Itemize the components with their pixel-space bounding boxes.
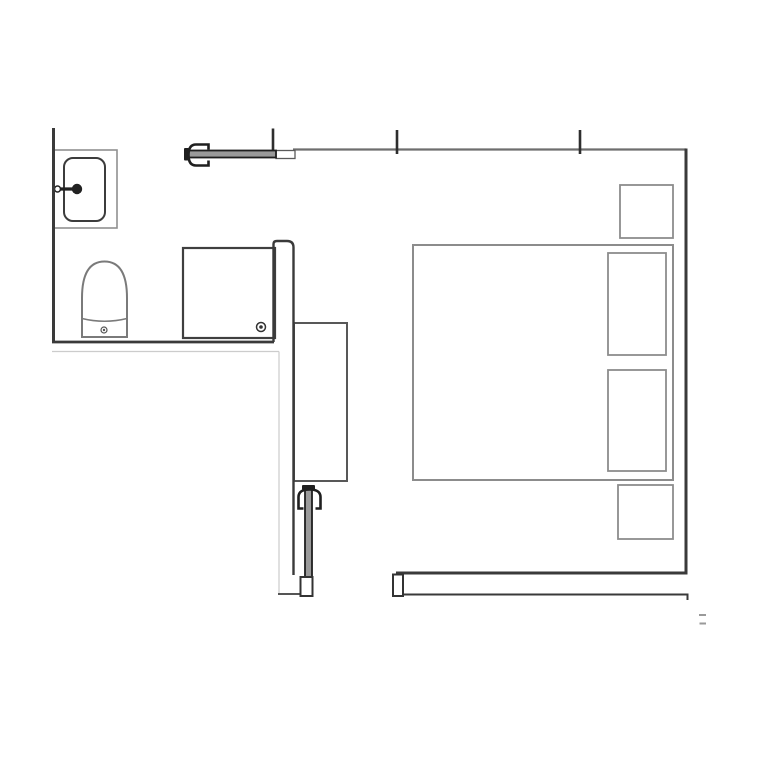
toilet-bolt-dot [103,329,105,331]
top-door-frame-jog [276,151,295,159]
partition-wall [274,241,294,575]
sink-faucet-valve [55,186,61,192]
floor-plan-svg [0,0,768,768]
sink-faucet-handle [72,184,82,194]
wardrobe [294,323,347,481]
pillow-bottom [608,370,666,471]
stray-mark-top [699,614,706,616]
bottom-rail [397,595,688,601]
stray-mark-bottom [700,623,707,625]
floor-plan-shapes [52,128,706,625]
bottom-rail-end-cap [393,575,403,597]
entry-door-leaf [305,489,312,577]
nightstand-bottom [618,485,673,539]
entry-door-frame [301,577,313,596]
floor-plan-page [0,0,768,768]
toilet-body [82,262,127,338]
bathroom-door-leaf [187,151,276,158]
nightstand-top [620,185,673,238]
shower-drain-dot [259,325,263,329]
pillow-top [608,253,666,355]
